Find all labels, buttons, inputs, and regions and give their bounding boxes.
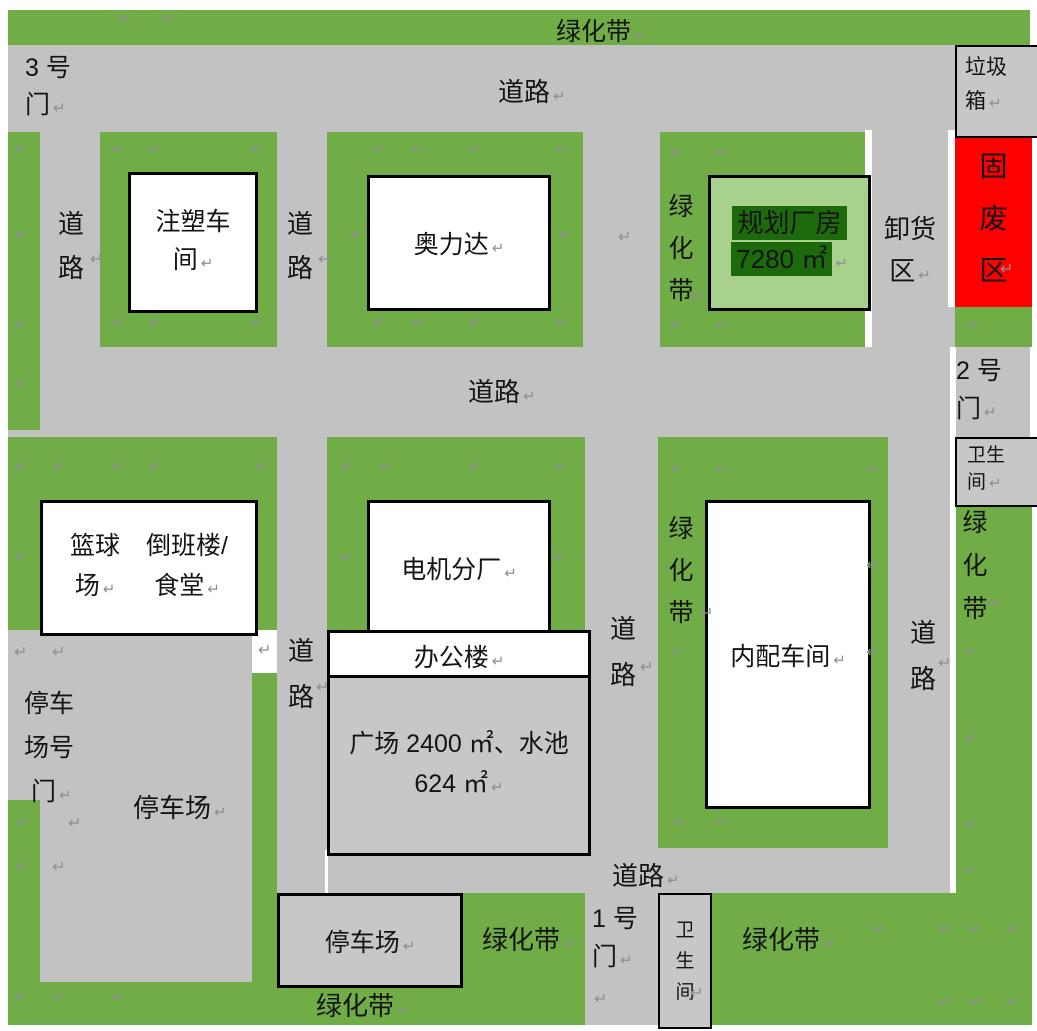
pilcrow-icon: ↵: [968, 995, 981, 1011]
pilcrow-icon: ↵: [716, 815, 729, 831]
pilcrow-icon: ↵: [670, 318, 683, 334]
gate-3-label: 3 号 门↵: [25, 50, 71, 127]
pilcrow-icon: ↵: [835, 255, 848, 272]
pilcrow-icon: ↵: [14, 645, 27, 661]
restroom-bottom-box: 卫生间: [658, 893, 712, 1029]
basketball-canteen-building: 篮球 场↵ 倒班楼/ 食堂↵: [40, 500, 258, 636]
motor-factory-building: 电机分厂↵: [367, 500, 551, 636]
pilcrow-icon: ↵: [866, 558, 879, 574]
pilcrow-icon: ↵: [250, 316, 263, 332]
pilcrow-icon: ↵: [492, 240, 505, 257]
pilcrow-icon: ↵: [690, 290, 703, 306]
pilcrow-icon: ↵: [504, 565, 517, 582]
pilcrow-icon: ↵: [672, 815, 685, 831]
pilcrow-icon: ↵: [872, 922, 885, 938]
pilcrow-icon: ↵: [690, 986, 703, 1002]
pilcrow-icon: ↵: [988, 596, 1001, 612]
pilcrow-icon: ↵: [716, 462, 729, 478]
inner-workshop-building: 内配车间↵: [705, 500, 871, 809]
white-gap-left-of-waste: [948, 130, 955, 307]
pilcrow-icon: ↵: [397, 1002, 410, 1019]
green-strip-mid-left: [252, 673, 277, 982]
pilcrow-icon: ↵: [556, 142, 569, 158]
office-building: 办公楼↵: [327, 630, 591, 681]
pilcrow-icon: ↵: [667, 872, 680, 889]
pilcrow-icon: ↵: [412, 316, 425, 332]
pilcrow-icon: ↵: [491, 779, 504, 796]
road-mid-upper-label: 道路: [283, 202, 317, 290]
pilcrow-icon: ↵: [670, 645, 683, 661]
pilcrow-icon: ↵: [103, 581, 116, 598]
pilcrow-icon: ↵: [52, 860, 65, 876]
pilcrow-icon: ↵: [118, 12, 131, 28]
green-bottom-right: [708, 893, 1030, 1025]
pilcrow-icon: ↵: [162, 12, 175, 28]
parking-lot-box: 停车场↵: [277, 893, 463, 988]
pilcrow-icon: ↵: [16, 860, 29, 876]
pilcrow-icon: ↵: [989, 95, 1002, 112]
pilcrow-icon: ↵: [968, 922, 981, 938]
pilcrow-icon: ↵: [16, 816, 29, 832]
pilcrow-icon: ↵: [412, 142, 425, 158]
pilcrow-icon: ↵: [670, 462, 683, 478]
pilcrow-icon: ↵: [90, 252, 103, 268]
pilcrow-icon: ↵: [558, 228, 571, 244]
pilcrow-icon: ↵: [340, 550, 353, 566]
pilcrow-icon: ↵: [468, 460, 481, 476]
green-belt-inner-label: 绿化带: [666, 508, 696, 634]
pilcrow-icon: ↵: [14, 142, 27, 158]
green-band-bottom: [8, 982, 585, 1025]
road-bottom-label: 道路↵: [612, 856, 680, 893]
pilcrow-icon: ↵: [556, 316, 569, 332]
pilcrow-icon: ↵: [964, 864, 977, 880]
pilcrow-icon: ↵: [14, 990, 27, 1006]
pilcrow-icon: ↵: [68, 816, 81, 832]
parking-area-label: 停车场↵: [133, 788, 227, 825]
pilcrow-icon: ↵: [866, 462, 879, 478]
pilcrow-icon: ↵: [634, 27, 647, 44]
pilcrow-icon: ↵: [563, 936, 576, 953]
plaza-box: 广场 2400 ㎡、水池 624 ㎡↵: [327, 675, 591, 856]
gate-1-label: 1 号 门↵: [592, 900, 638, 980]
unloading-label: 卸货 区↵: [874, 208, 946, 297]
road-lower-right-label: 道路: [906, 610, 940, 702]
pilcrow-icon: ↵: [112, 990, 125, 1006]
pilcrow-icon: ↵: [112, 460, 125, 476]
pilcrow-icon: ↵: [938, 656, 951, 672]
pilcrow-icon: ↵: [14, 318, 27, 334]
road-left-upper-label: 道路: [54, 202, 88, 290]
pilcrow-icon: ↵: [201, 255, 214, 272]
pilcrow-icon: ↵: [52, 645, 65, 661]
pilcrow-icon: ↵: [372, 142, 385, 158]
pilcrow-icon: ↵: [670, 146, 683, 162]
pilcrow-icon: ↵: [492, 653, 505, 670]
pilcrow-icon: ↵: [989, 475, 1002, 492]
pilcrow-icon: ↵: [258, 643, 271, 659]
green-belt-bottom-label: 绿化带↵: [316, 986, 410, 1023]
green-belt-top-label: 绿化带↵: [556, 12, 647, 48]
road-lower-left-label: 道路: [284, 628, 318, 720]
pilcrow-icon: ↵: [14, 377, 27, 393]
pilcrow-icon: ↵: [403, 938, 416, 955]
road-middle-label: 道路↵: [468, 372, 536, 409]
pilcrow-icon: ↵: [214, 804, 227, 821]
pilcrow-icon: ↵: [918, 267, 931, 284]
pilcrow-icon: ↵: [554, 550, 567, 566]
pilcrow-icon: ↵: [1006, 995, 1019, 1011]
green-belt-right-label: 绿化带: [960, 502, 990, 631]
pilcrow-icon: ↵: [964, 645, 977, 661]
pilcrow-icon: ↵: [112, 142, 125, 158]
pilcrow-icon: ↵: [1000, 262, 1013, 278]
pilcrow-icon: ↵: [964, 818, 977, 834]
pilcrow-icon: ↵: [966, 318, 979, 334]
pilcrow-icon: ↵: [823, 936, 836, 953]
pilcrow-icon: ↵: [700, 606, 713, 622]
aolida-building: 奥力达↵: [367, 175, 551, 311]
gate-2-label: 2 号 门↵: [956, 352, 1002, 432]
pilcrow-icon: ↵: [148, 460, 161, 476]
pilcrow-icon: ↵: [716, 146, 729, 162]
pilcrow-icon: ↵: [53, 100, 66, 117]
white-sliver: [325, 850, 328, 893]
planned-factory-box: 规划厂房 7280 ㎡↵: [708, 175, 871, 311]
restroom-top-box: 卫生 间↵: [955, 437, 1037, 507]
road-top-label: 道路↵: [498, 72, 566, 109]
pilcrow-icon: ↵: [620, 952, 633, 969]
pilcrow-icon: ↵: [112, 316, 125, 332]
pilcrow-icon: ↵: [553, 88, 566, 105]
pilcrow-icon: ↵: [207, 581, 220, 598]
pilcrow-icon: ↵: [1006, 922, 1019, 938]
pilcrow-icon: ↵: [938, 995, 951, 1011]
pilcrow-icon: ↵: [250, 142, 263, 158]
trash-bin-box: 垃圾 箱↵: [955, 45, 1037, 138]
pilcrow-icon: ↵: [14, 228, 27, 244]
pilcrow-icon: ↵: [468, 142, 481, 158]
pilcrow-icon: ↵: [52, 990, 65, 1006]
pilcrow-icon: ↵: [964, 732, 977, 748]
pilcrow-icon: ↵: [594, 992, 607, 1008]
pilcrow-icon: ↵: [380, 460, 393, 476]
green-belt-right-bottom-label: 绿化带↵: [742, 920, 836, 957]
pilcrow-icon: ↵: [14, 460, 27, 476]
injection-workshop-building: 注塑车 间↵: [128, 172, 258, 313]
pilcrow-icon: ↵: [554, 460, 567, 476]
solid-waste-zone: 固废区: [955, 130, 1032, 307]
pilcrow-icon: ↵: [716, 318, 729, 334]
pilcrow-icon: ↵: [866, 645, 879, 661]
pilcrow-icon: ↵: [984, 404, 997, 421]
pilcrow-icon: ↵: [14, 550, 27, 566]
green-belt-mid-bottom-label: 绿化带↵: [482, 920, 576, 957]
factory-site-plan: 固废区 注塑车 间↵ 奥力达↵ 规划厂房 7280 ㎡↵ 篮球 场↵ 倒班楼/ …: [0, 0, 1037, 1031]
pilcrow-icon: ↵: [52, 460, 65, 476]
pilcrow-icon: ↵: [618, 230, 631, 246]
pilcrow-icon: ↵: [468, 316, 481, 332]
parking-gate-label: 停车 场号 门↵: [24, 682, 74, 818]
pilcrow-icon: ↵: [523, 388, 536, 405]
pilcrow-icon: ↵: [938, 922, 951, 938]
pilcrow-icon: ↵: [372, 316, 385, 332]
pilcrow-icon: ↵: [148, 142, 161, 158]
pilcrow-icon: ↵: [316, 680, 329, 696]
pilcrow-icon: ↵: [350, 228, 363, 244]
pilcrow-icon: ↵: [640, 660, 653, 676]
pilcrow-icon: ↵: [59, 787, 72, 804]
pilcrow-icon: ↵: [256, 460, 269, 476]
pilcrow-icon: ↵: [340, 460, 353, 476]
road-lower-mid-label: 道路: [606, 606, 640, 698]
pilcrow-icon: ↵: [318, 252, 331, 268]
pilcrow-icon: ↵: [148, 316, 161, 332]
pilcrow-icon: ↵: [833, 652, 846, 669]
